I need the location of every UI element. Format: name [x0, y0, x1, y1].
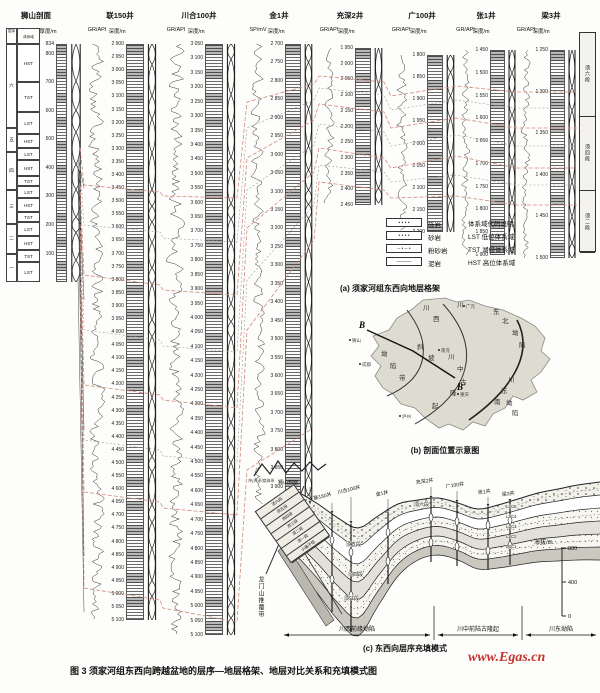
depth-tick-label: 1 900 [412, 97, 425, 102]
elevation-scale-label: 海拔/m [534, 538, 553, 546]
depth-tick-label: 3 600 [190, 201, 203, 206]
thickness-tick-label: 700 [46, 80, 54, 85]
depth-tick-label: 3 200 [270, 226, 283, 231]
zone-label: 川西前缘坳陷 [339, 625, 375, 633]
depth-ticks: 1 9502 0002 0502 1002 1502 2002 2502 300… [340, 48, 353, 205]
depth-tick-label: 2 950 [111, 55, 124, 60]
thickness-tick-label: 300 [46, 194, 54, 199]
depth-tick-label: 2 150 [412, 208, 425, 213]
sequence-group-label: 五 [6, 128, 17, 152]
depth-tick-label: 5 050 [190, 619, 203, 624]
depth-tick-label: 3 350 [111, 160, 124, 165]
well-name: 梁3井 [516, 10, 586, 21]
depth-tick-label: 3 800 [190, 258, 203, 263]
depth-tick-label: 2 900 [270, 116, 283, 121]
tract-row-label: HST [17, 198, 40, 212]
model-sequence-label: LSC4 [506, 514, 517, 519]
lithology-swatch: – • – • [386, 244, 422, 253]
depth-tick-label: 3 250 [270, 245, 283, 250]
depth-tick-label: 3 850 [111, 291, 124, 296]
model-member-label: 须四段 [348, 571, 363, 578]
depth-tick-label: 4 400 [111, 435, 124, 440]
gr-curve [319, 48, 339, 205]
depth-tick-label: 4 250 [190, 388, 203, 393]
depth-tick-label: 3 950 [111, 317, 124, 322]
depth-tick-label: 4 900 [111, 566, 124, 571]
depth-tick-label: 3 500 [190, 172, 203, 177]
depth-tick-label: 4 250 [111, 396, 124, 401]
depth-header-label: 深度/m [331, 27, 361, 35]
map-region-char: 陷 [519, 340, 526, 349]
well-name: 广100井 [387, 10, 457, 21]
depth-tick-label: 3 350 [270, 282, 283, 287]
city-label: 南充 [441, 347, 450, 354]
depth-tick-label: 1 800 [475, 207, 488, 212]
depth-tick-label: 2 750 [270, 60, 283, 65]
depth-tick-label: 2 700 [270, 42, 283, 47]
depth-header-label: 深度/m [403, 27, 433, 35]
depth-tick-label: 4 750 [190, 532, 203, 537]
sequence-lens-column [373, 48, 384, 205]
tract-row-label: TST [17, 212, 40, 222]
depth-ticks: 2 9002 9503 0003 0503 1003 1503 2003 250… [111, 44, 124, 620]
sequence-lens-column [69, 44, 83, 282]
depth-tick-label: 3 300 [190, 114, 203, 119]
sequence-lens-column [225, 44, 237, 635]
depth-tick-label: 1 750 [475, 185, 488, 190]
depth-tick-label: 3 050 [111, 81, 124, 86]
depth-tick-label: 3 050 [270, 171, 283, 176]
lithology-column [205, 44, 223, 635]
depth-tick-label: 4 450 [190, 446, 203, 451]
map-region-char: 斜 [417, 342, 424, 351]
depth-tick-label: 2 250 [340, 140, 353, 145]
lithology-column [355, 48, 371, 205]
depth-header-label: 深度/m [526, 27, 556, 35]
member-label: 须四段 [580, 117, 595, 192]
city-marker [399, 415, 401, 417]
city-marker [457, 393, 459, 395]
city-label: 广元 [466, 303, 475, 310]
elevation-tick-label: 400 [568, 580, 577, 586]
map-region-char: 坳 [381, 349, 388, 358]
col-header-sequence: 层序 [6, 28, 17, 44]
depth-tick-label: 2 150 [340, 109, 353, 114]
tract-row-label: LST [17, 112, 40, 134]
col-header-tract: 体系域 [17, 28, 40, 44]
depth-tick-label: 4 800 [190, 547, 203, 552]
depth-tick-label: 3 100 [190, 56, 203, 61]
city-marker [438, 349, 440, 351]
depth-tick-label: 3 100 [270, 190, 283, 195]
depth-tick-label: 4 950 [111, 579, 124, 584]
depth-tick-label: 2 400 [340, 187, 353, 192]
depth-tick-label: 4 350 [190, 417, 203, 422]
zone-arrowhead [513, 633, 518, 637]
map-region-char: 川 [423, 305, 430, 312]
tract-row-label: LST [17, 148, 40, 160]
map-region-char: 带 [399, 374, 406, 382]
thickness-tick-label: 200 [46, 223, 54, 228]
depth-tick-label: 3 050 [190, 42, 203, 47]
depth-tick-label: 4 150 [111, 369, 124, 374]
zone-label: 川东坳陷 [549, 625, 573, 633]
thickness-tick-label: 500 [46, 137, 54, 142]
depth-tick-label: 2 350 [340, 172, 353, 177]
depth-tick-label: 3 700 [190, 229, 203, 234]
member-column: 须六段须四段须二段 [579, 32, 596, 252]
depth-tick-label: 1 500 [535, 256, 548, 261]
sequence-group-label: 三 [6, 190, 17, 224]
depth-tick-label: 4 750 [111, 526, 124, 531]
tract-row-label: LST [17, 186, 40, 198]
member-label: 须二段 [580, 191, 595, 253]
model-well-label: 川合100井 [337, 484, 361, 496]
lithology-label: 粉砂岩 [428, 245, 448, 255]
depth-tick-label: 4 650 [190, 503, 203, 508]
tract-row-label: HST [17, 44, 40, 82]
tract-legend-item: TST 湖侵体系域 [468, 244, 514, 254]
thickness-ticks: 834800700600500400300200100 [42, 44, 54, 282]
depth-tick-label: 3 500 [270, 337, 283, 342]
map-region-char: 中 [457, 364, 464, 373]
depth-tick-label: 3 250 [190, 100, 203, 105]
depth-header-label: 深度/m [261, 27, 291, 35]
zone-label: 川中前陆古隆起 [457, 625, 499, 633]
map-region-char: 南 [494, 397, 501, 406]
zone-arrowhead [591, 633, 596, 637]
depth-tick-label: 3 700 [111, 252, 124, 257]
depth-tick-label: 3 450 [270, 319, 283, 324]
depth-tick-label: 2 100 [412, 186, 425, 191]
depth-tick-label: 2 800 [270, 79, 283, 84]
depth-tick-label: 4 600 [190, 489, 203, 494]
model-member-label: 须六段 [414, 501, 429, 508]
map-region-char: 东 [501, 386, 508, 395]
model-sequence-label: LSC5 [506, 504, 517, 509]
depth-tick-label: 4 700 [190, 518, 203, 523]
depth-tick-label: 3 200 [111, 121, 124, 126]
basin-map: BB′川西坳陷带斜坡川东北坳陷川中古隆起川东南坳陷狮山广元南充成都重庆泸州 [345, 296, 600, 452]
depth-tick-label: 3 400 [190, 143, 203, 148]
depth-tick-label: 1 950 [340, 46, 353, 51]
map-region-char: 古 [460, 377, 467, 386]
longmenshan-thrust-belt-label: 龙门山推覆带 [256, 576, 265, 656]
depth-tick-label: 4 800 [111, 540, 124, 545]
fan-system-label: 冲(洪)积扇体系 [248, 477, 275, 483]
depth-tick-label: 4 600 [111, 487, 124, 492]
model-well-lens [486, 546, 490, 555]
gr-curve [84, 44, 110, 620]
figure-3-stratigraphic-figure: 联150井GR/API深度/m2 9002 9503 0003 0503 100… [0, 0, 600, 693]
depth-tick-label: 4 500 [190, 460, 203, 465]
depth-tick-label: 4 300 [111, 409, 124, 414]
lithology-label: 砾岩 [428, 219, 441, 229]
depth-tick-label: 1 550 [475, 94, 488, 99]
city-marker [349, 339, 351, 341]
depth-tick-label: 2 300 [340, 156, 353, 161]
basin-outline [371, 298, 550, 430]
model-sequence-label: LSC2 [506, 534, 517, 539]
depth-tick-label: 3 600 [270, 374, 283, 379]
sequence-lens-column [146, 44, 158, 620]
model-well-lens [386, 557, 390, 566]
model-sequence-label: LSC1 [506, 544, 517, 549]
panel-b-location-map: BB′川西坳陷带斜坡川东北坳陷川中古隆起川东南坳陷狮山广元南充成都重庆泸州 [345, 296, 600, 452]
well-name: 金1井 [244, 10, 314, 21]
depth-tick-label: 2 050 [340, 77, 353, 82]
depth-tick-label: 4 650 [111, 500, 124, 505]
depth-ticks: 1 8001 8501 9001 9502 0002 0502 1002 150… [412, 55, 425, 232]
depth-tick-label: 4 000 [111, 330, 124, 335]
depth-tick-label: 3 650 [190, 215, 203, 220]
depth-tick-label: 5 100 [190, 633, 203, 638]
depth-header-label: 深度/m [466, 27, 496, 35]
zone-arrowhead [425, 633, 430, 637]
model-well-lens [386, 528, 390, 537]
depth-tick-label: 3 350 [190, 129, 203, 134]
map-region-char: 川 [457, 302, 464, 309]
tract-row-label: HST [17, 236, 40, 250]
depth-tick-label: 2 050 [412, 164, 425, 169]
model-well-lens [429, 513, 433, 522]
gr-curve [391, 55, 411, 232]
map-region-char: 坳 [512, 328, 519, 337]
model-well-lens [486, 521, 490, 530]
section-endpoint-B: B [358, 320, 365, 330]
depth-tick-label: 4 050 [190, 330, 203, 335]
map-region-char: 起 [432, 402, 439, 410]
depth-tick-label: 4 350 [111, 422, 124, 427]
depth-tick-label: 3 000 [111, 68, 124, 73]
depth-tick-label: 3 300 [270, 263, 283, 268]
depth-tick-label: 1 350 [535, 131, 548, 136]
thickness-tick-label: 100 [46, 252, 54, 257]
lithology-label: 砂岩 [428, 232, 441, 242]
depth-tick-label: 3 150 [270, 208, 283, 213]
depth-tick-label: 1 600 [475, 116, 488, 121]
map-region-char: 陷 [512, 408, 519, 417]
depth-header-label: 深度/m [181, 27, 211, 35]
tract-row-label: HST [17, 134, 40, 148]
depth-tick-label: 1 700 [475, 162, 488, 167]
sequence-lens-column [567, 50, 577, 258]
depth-tick-label: 4 000 [190, 316, 203, 321]
thickness-tick-label: 600 [46, 109, 54, 114]
depth-tick-label: 3 850 [190, 273, 203, 278]
city-marker [463, 305, 465, 307]
depth-tick-label: 1 300 [535, 90, 548, 95]
lithology-column [550, 50, 565, 258]
tract-row-label: TST [17, 176, 40, 186]
depth-tick-label: 3 450 [111, 186, 124, 191]
depth-tick-label: 4 050 [111, 343, 124, 348]
model-well-label: 广100井 [445, 480, 464, 489]
depth-tick-label: 4 550 [111, 474, 124, 479]
map-region-char: 东 [493, 307, 500, 316]
depth-tick-label: 1 450 [535, 214, 548, 219]
depth-tick-label: 3 450 [190, 157, 203, 162]
depth-tick-label: 4 850 [111, 553, 124, 558]
depth-tick-label: 2 900 [111, 42, 124, 47]
depth-tick-label: 3 150 [111, 108, 124, 113]
depth-ticks: 1 2501 3001 3501 4001 4501 500 [535, 50, 548, 258]
depth-tick-label: 5 100 [111, 618, 124, 623]
depth-tick-label: 4 200 [190, 374, 203, 379]
tract-row-label: LST [17, 262, 40, 282]
sequence-group-label: 二 [6, 224, 17, 254]
panel-a-caption: (a) 须家河组东西向地层格架 [340, 283, 440, 294]
depth-tick-label: 3 650 [270, 392, 283, 397]
depth-tick-label: 1 950 [412, 119, 425, 124]
depth-tick-label: 1 850 [412, 75, 425, 80]
model-sequence-label: LSC3 [506, 524, 517, 529]
depth-tick-label: 3 650 [111, 238, 124, 243]
lithology-column [126, 44, 144, 620]
city-label: 狮山 [352, 337, 361, 344]
model-well-lens [455, 542, 459, 551]
depth-tick-label: 2 000 [340, 62, 353, 67]
tract-legend-item: LST 低位体系域 [468, 231, 514, 241]
depth-tick-label: 1 450 [475, 48, 488, 53]
model-well-label: 梁3井 [501, 490, 514, 498]
depth-tick-label: 3 600 [111, 225, 124, 230]
tract-legend-item: HST 高位体系域 [468, 257, 515, 267]
tract-legend-title: 体系域代码说明: [468, 218, 515, 228]
depth-tick-label: 3 000 [270, 153, 283, 158]
map-region-char: 北 [502, 317, 509, 325]
depth-tick-label: 3 400 [270, 300, 283, 305]
panel-b-caption: (b) 剖面位置示意图 [355, 445, 535, 456]
depth-tick-label: 2 450 [340, 203, 353, 208]
depth-tick-label: 3 750 [111, 265, 124, 270]
depth-tick-label: 2 850 [270, 97, 283, 102]
lithology-label: 泥岩 [428, 258, 441, 268]
thickness-tick-label: 834 [46, 42, 54, 47]
depth-tick-label: 3 750 [270, 429, 283, 434]
mountain-zigzag [254, 461, 326, 476]
tract-row-label: HST [17, 160, 40, 176]
depth-tick-label: 5 000 [190, 604, 203, 609]
model-well-lens [330, 575, 334, 584]
depth-tick-label: 1 400 [535, 173, 548, 178]
well-name: 充深2井 [315, 10, 385, 21]
model-well-lens [455, 517, 459, 526]
lithology-swatch: ▪ ▪ ▪ ▪ [386, 218, 422, 227]
lithology-column [285, 44, 301, 505]
gr-curve [518, 50, 534, 258]
city-label: 成都 [362, 361, 371, 368]
model-member-label: 须三段 [344, 595, 359, 602]
model-well-label: 联150井 [313, 491, 332, 502]
depth-tick-label: 2 950 [270, 134, 283, 139]
tract-row-label: TST [17, 250, 40, 262]
model-well-arrowhead [350, 521, 353, 524]
map-region-char: 西 [433, 315, 440, 323]
sequence-group-label: 六 [6, 44, 17, 128]
depth-tick-label: 3 500 [111, 199, 124, 204]
depth-tick-label: 3 750 [190, 244, 203, 249]
well-name: 张1井 [451, 10, 521, 21]
zone-arrowhead [438, 633, 443, 637]
depth-tick-label: 3 550 [270, 356, 283, 361]
depth-tick-label: 4 500 [111, 461, 124, 466]
depth-tick-label: 3 150 [190, 71, 203, 76]
depth-tick-label: 2 200 [340, 125, 353, 130]
model-member-label: 须五段 [346, 541, 361, 548]
depth-tick-label: 3 550 [190, 186, 203, 191]
model-well-label: 张1井 [477, 488, 490, 496]
figure-caption: 图 3 须家河组东西向跨越盆地的层序—地层格架、地层对比关系和充填模式图 [70, 664, 500, 677]
depth-tick-label: 3 700 [270, 411, 283, 416]
lithology-swatch: • • • • [386, 231, 422, 240]
depth-tick-label: 4 950 [190, 590, 203, 595]
depth-tick-label: 3 900 [190, 287, 203, 292]
zone-arrowhead [284, 633, 289, 637]
depth-tick-label: 4 100 [190, 345, 203, 350]
depth-tick-label: 5 050 [111, 605, 124, 610]
depth-tick-label: 1 500 [475, 71, 488, 76]
depth-tick-label: 4 450 [111, 448, 124, 453]
depth-tick-label: 3 400 [111, 173, 124, 178]
depth-tick-label: 3 250 [111, 134, 124, 139]
lithology-column [56, 44, 67, 282]
lithology-swatch: ——— [386, 257, 422, 266]
depth-tick-label: 4 700 [111, 513, 124, 518]
gr-curve [247, 44, 269, 505]
map-region-char: 隆 [450, 388, 457, 397]
depth-ticks: 2 7002 7502 8002 8502 9002 9503 0003 050… [270, 44, 283, 505]
sequence-group-label: 四 [6, 152, 17, 190]
map-region-char: 坳 [506, 398, 513, 407]
depth-tick-label: 2 000 [412, 142, 425, 147]
depth-ticks: 3 0503 1003 1503 2003 2503 3003 3503 400… [190, 44, 203, 635]
city-label: 重庆 [460, 391, 469, 398]
city-marker [359, 363, 361, 365]
sequence-group-label: 一 [6, 254, 17, 282]
elevation-tick-label: 0 [568, 614, 571, 620]
thickness-tick-label: 800 [46, 52, 54, 57]
depth-tick-label: 3 550 [111, 212, 124, 217]
watermark: www.Egas.cn [468, 650, 545, 666]
depth-tick-label: 3 200 [190, 85, 203, 90]
tract-row-label: TST [17, 82, 40, 112]
depth-tick-label: 3 900 [111, 304, 124, 309]
well-name: 联150井 [85, 10, 155, 21]
map-region-char: 川 [448, 354, 455, 361]
depth-tick-label: 3 800 [111, 278, 124, 283]
sequence-lens-column [303, 44, 314, 505]
model-well-lens [429, 538, 433, 547]
model-well-lens [349, 548, 353, 557]
map-region-char: 川 [508, 377, 515, 384]
well-name: 川合100井 [164, 10, 234, 21]
sequence-lens-column [445, 55, 456, 232]
thickness-tick-label: 400 [46, 166, 54, 171]
depth-tick-label: 4 550 [190, 474, 203, 479]
tract-row-label: LST [17, 222, 40, 236]
depth-tick-label: 3 100 [111, 94, 124, 99]
depth-header-label: 深度/m [102, 27, 132, 35]
depth-tick-label: 4 400 [190, 431, 203, 436]
depth-tick-label: 1 650 [475, 139, 488, 144]
elevation-tick-label: 800 [568, 546, 577, 552]
depth-tick-label: 5 000 [111, 592, 124, 597]
model-well-label: 金1井 [375, 489, 389, 498]
depth-tick-label: 2 100 [340, 93, 353, 98]
depth-tick-label: 4 200 [111, 382, 124, 387]
model-well-lens [330, 536, 334, 545]
